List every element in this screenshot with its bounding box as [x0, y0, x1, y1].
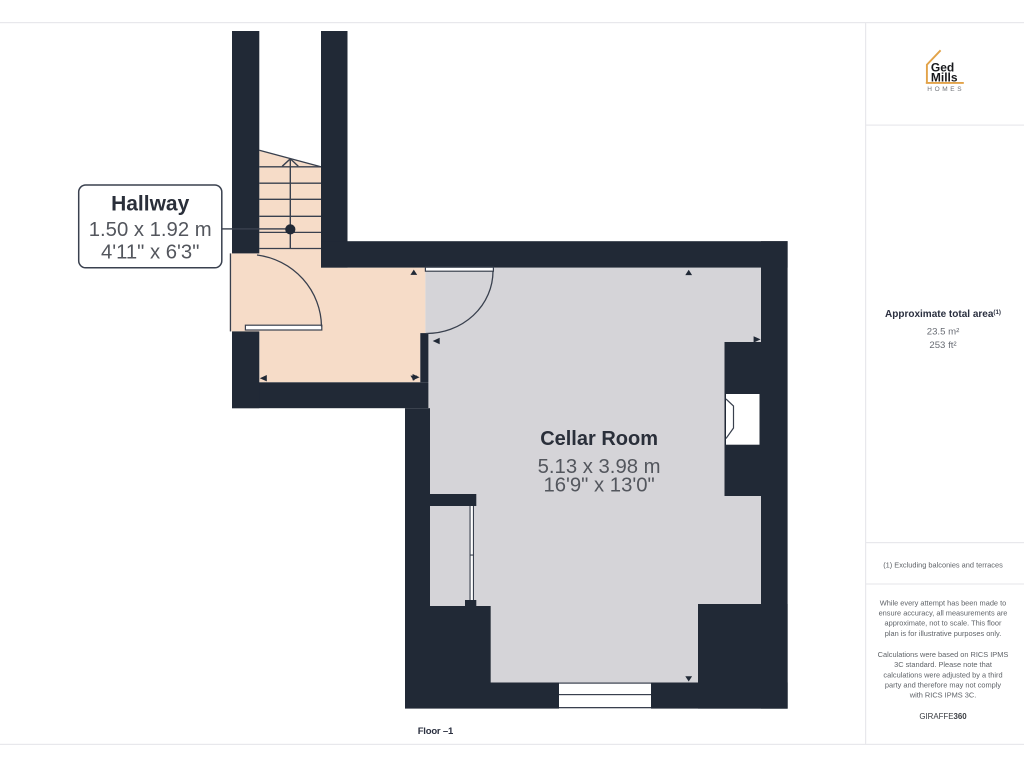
- svg-text:HOMES: HOMES: [927, 86, 964, 93]
- svg-text:Floor –1: Floor –1: [418, 726, 454, 737]
- svg-text:approximate, not to scale. Thi: approximate, not to scale. This floor: [885, 619, 1002, 628]
- svg-text:4'11" x 6'3": 4'11" x 6'3": [101, 242, 199, 264]
- svg-text:Cellar Room: Cellar Room: [540, 428, 658, 450]
- svg-text:Approximate total area(1): Approximate total area(1): [885, 309, 1001, 320]
- svg-text:23.5 m²: 23.5 m²: [927, 327, 960, 338]
- svg-text:Mills: Mills: [931, 70, 958, 84]
- svg-text:16'9" x 13'0": 16'9" x 13'0": [543, 475, 654, 497]
- svg-text:3C standard. Please note that: 3C standard. Please note that: [894, 660, 992, 669]
- svg-text:(1) Excluding balconies and te: (1) Excluding balconies and terraces: [883, 561, 1003, 570]
- svg-text:with RICS IPMS 3C.: with RICS IPMS 3C.: [909, 690, 977, 699]
- svg-text:GIRAFFE360: GIRAFFE360: [919, 712, 967, 721]
- svg-text:253 ft²: 253 ft²: [929, 340, 957, 351]
- svg-text:calculations were adjusted by: calculations were adjusted by a third: [883, 670, 1002, 679]
- svg-text:plan is for illustrative purpo: plan is for illustrative purposes only.: [885, 629, 1002, 638]
- svg-text:Calculations were based on RIC: Calculations were based on RICS IPMS: [878, 650, 1009, 659]
- svg-text:1.50 x 1.92 m: 1.50 x 1.92 m: [89, 219, 212, 241]
- svg-text:Hallway: Hallway: [111, 192, 190, 215]
- svg-text:ensure accuracy, all measureme: ensure accuracy, all measurements are: [879, 609, 1008, 618]
- svg-text:While every attempt has been m: While every attempt has been made to: [880, 598, 1007, 607]
- svg-text:party and therefore may not co: party and therefore may not comply: [885, 681, 1002, 690]
